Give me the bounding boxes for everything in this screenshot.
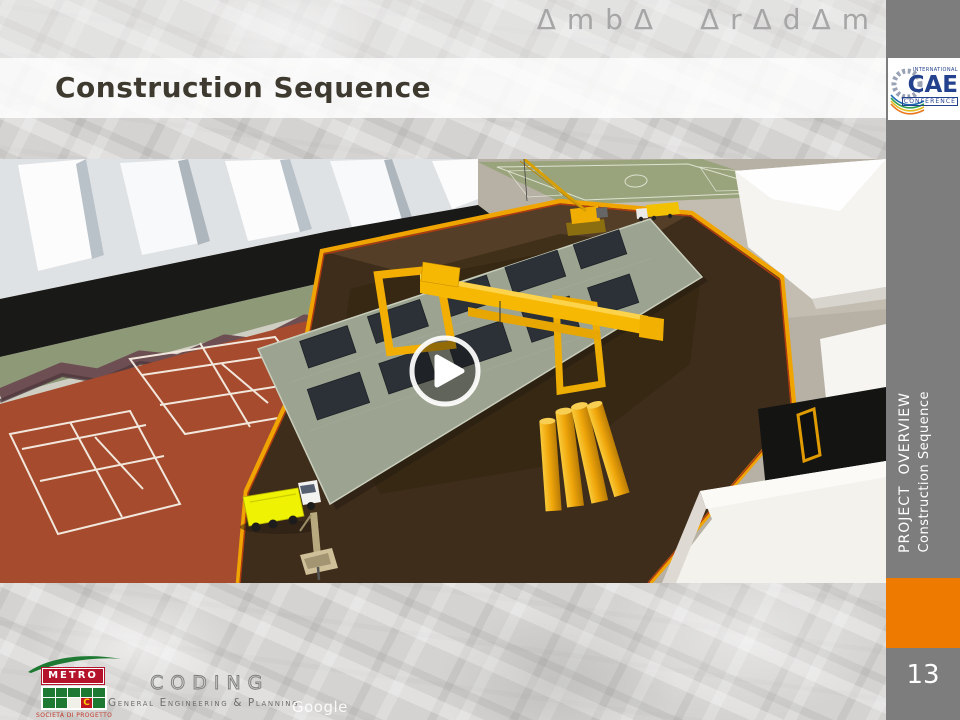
cae-main-label: CAE	[908, 73, 958, 97]
coding-tagline: General Engineering & Planning	[108, 697, 299, 709]
cae-conference-label: CONFERENCE	[902, 97, 958, 106]
sidebar: INTERNATIONAL CAE CONFERENCE PROJECT OVE…	[886, 0, 960, 720]
metro-logo: METRO C SOCIETÀ DI PROGETTO	[28, 655, 132, 719]
construction-render	[0, 159, 886, 583]
play-button[interactable]	[412, 338, 478, 404]
metro-subtitle: SOCIETÀ DI PROGETTO	[36, 712, 112, 719]
accent-block	[886, 578, 960, 648]
coding-wordmark: CODING	[150, 672, 269, 694]
google-watermark: Google	[292, 698, 348, 716]
slide: ΔmbΔ ΔrΔdΔm Construction Sequence	[0, 0, 960, 720]
section-kicker: PROJECT OVERVIEW	[897, 392, 913, 553]
brand-wordmark: ΔmbΔ ΔrΔdΔm	[537, 3, 880, 36]
page-title: Construction Sequence	[0, 58, 886, 118]
sidebar-section-labels: PROJECT OVERVIEW Construction Sequence	[897, 391, 932, 553]
metro-grid-icon: C	[42, 687, 106, 709]
title-band: Construction Sequence	[0, 58, 886, 118]
page-number: 13	[886, 660, 960, 690]
metro-c-cell: C	[81, 698, 93, 708]
cae-conference-logo: INTERNATIONAL CAE CONFERENCE	[888, 58, 960, 120]
section-subtitle: Construction Sequence	[917, 391, 932, 553]
metro-wordmark: METRO	[42, 668, 104, 684]
